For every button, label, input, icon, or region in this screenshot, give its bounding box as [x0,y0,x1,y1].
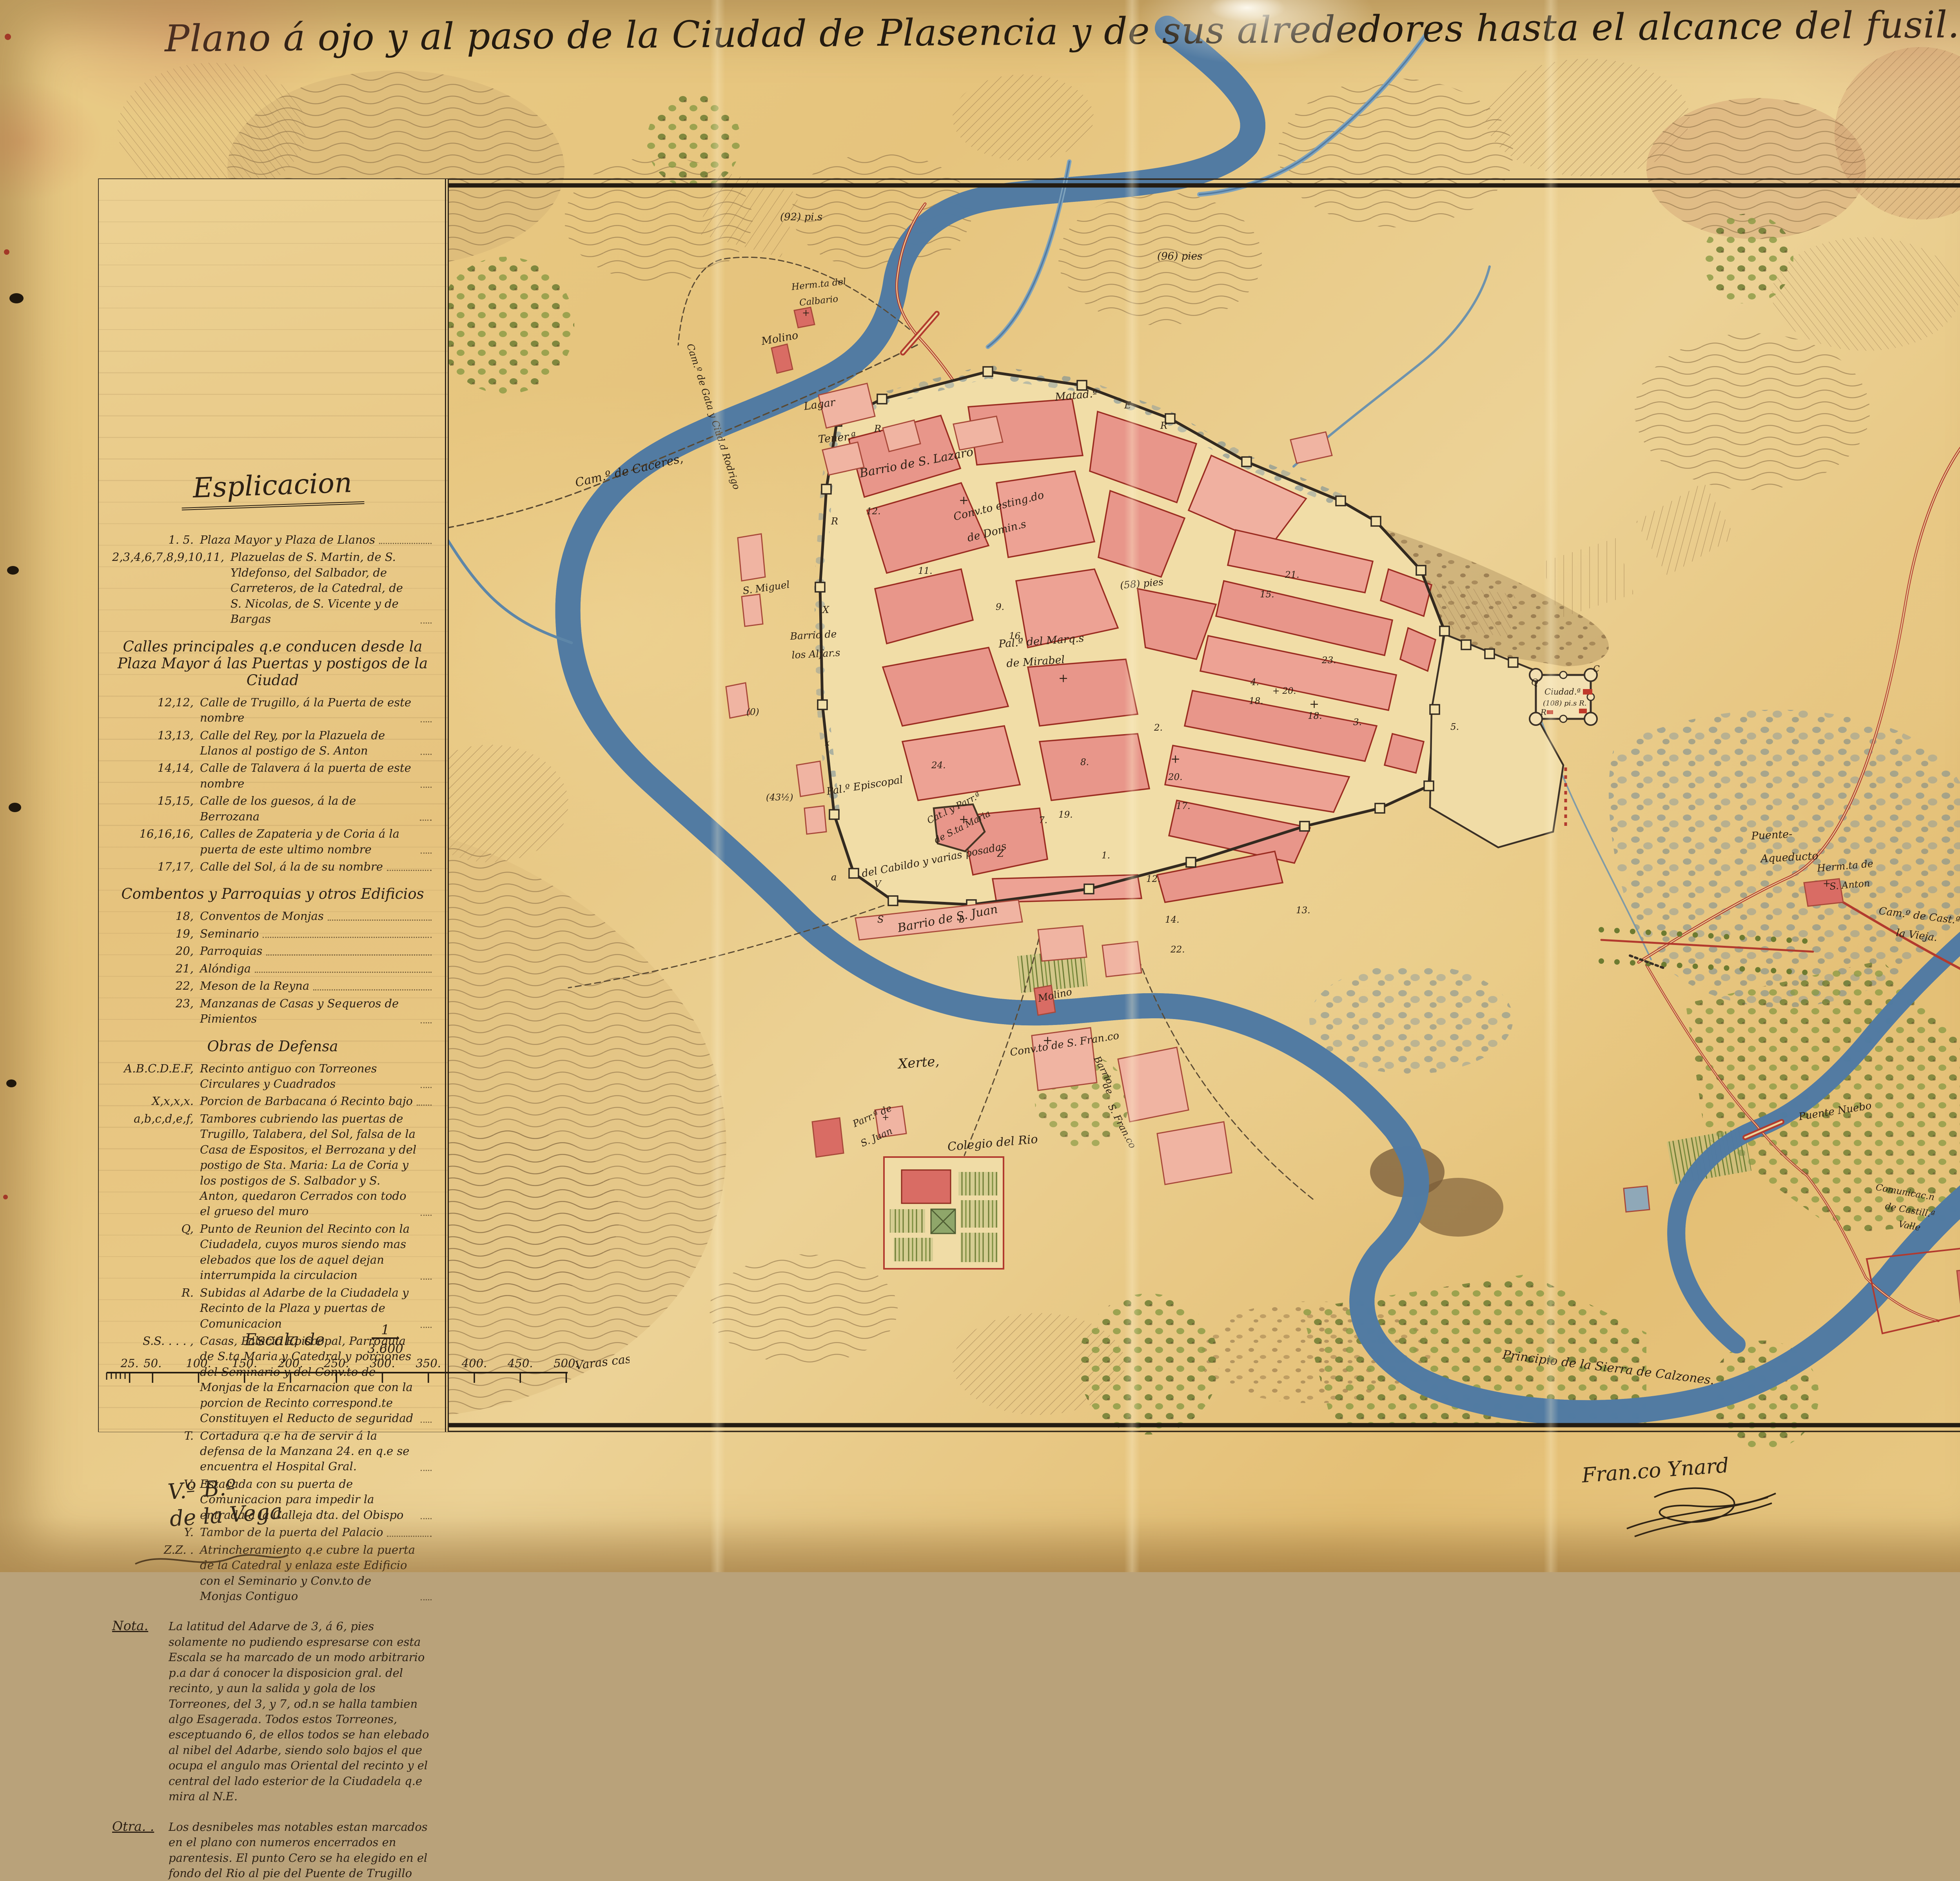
map-label: 14. [1165,915,1180,925]
legend-panel: Esplicacion 1. 5.Plaza Mayor y Plaza de … [99,179,449,1432]
map-label: 11. [918,566,933,576]
legend-entry: a,b,c,d,e,f,Tambores cubriendo las puert… [112,1111,433,1219]
legend-entry-key: 22, [112,978,200,994]
map-label: 9. [996,602,1004,612]
wall-tower [849,869,858,878]
legend-section-header: Calles principales q.e conducen desde la… [116,638,429,689]
dotted-leader [421,853,432,854]
legend-entry: Y.Tambor de la puerta del Palacio [112,1525,433,1540]
wall-tower [983,367,993,376]
dotted-leader [421,787,432,788]
scale-fraction-numerator: 1 [381,1322,390,1338]
legend-entry-text: Meson de la Reyna [200,978,309,994]
legend-entry: 22,Meson de la Reyna [112,978,433,994]
legend-entry: 2,3,4,6,7,8,9,10,11,Plazuelas de S. Mart… [112,550,433,627]
legend-section-header: Obras de Defensa [116,1038,429,1055]
dotted-leader [421,1599,432,1600]
map-label: 19. [1058,810,1073,820]
legend-entry-key: 23, [112,996,200,1011]
legend-entry-text: Porcion de Barbacana ó Recinto bajo [200,1094,413,1109]
map-label: + [882,1113,889,1123]
scale-tick-label: 100. [186,1357,211,1370]
map-label: + [1171,752,1180,766]
legend-entry-text: La latitud del Adarve de 3, á 6, pies so… [169,1619,433,1804]
dotted-leader [421,721,432,722]
map-label: 17. [1176,801,1191,811]
legend-entry-text: Calle de Talavera á la puerta de este no… [200,760,417,791]
scale-unit: Varas castell.s [574,1349,630,1373]
legend-entry-key: 21, [112,961,200,976]
map-label: + [959,493,969,507]
dotted-leader [387,1536,432,1537]
dotted-leader [328,920,432,921]
legend-entry-text: Seminario [200,926,259,941]
legend-entry-key: a,b,c,d,e,f, [112,1111,200,1126]
legend-entry-key: 18, [112,909,200,924]
wall-tower [1371,517,1381,526]
legend-entry-key: 2,3,4,6,7,8,9,10,11, [112,550,230,565]
legend-entry-key: 20, [112,943,200,959]
signature-right-flourish [1603,1482,1784,1552]
legend-entry-text: Alóndiga [200,961,251,976]
legend-entry: 18,Conventos de Monjas [112,909,433,924]
map-label: 2. [1154,723,1163,733]
legend-entry-key: T. [112,1428,200,1444]
wall-tower [1416,566,1426,575]
map-label: Herm.ta del [791,277,847,293]
scale-ticks: 25.50.100.150.200.250.300.350.400.450.50… [120,1357,579,1383]
map-label: Ciudad.ª [1544,687,1581,697]
legend-entry-text: Calle del Rey, por la Plazuela de Llanos… [200,728,417,759]
dotted-leader [387,870,432,871]
map-label: (0) [746,707,759,717]
map-label: + 20. [1272,686,1296,696]
legend-entry-text: Calle de los guesos, á la de Berrozana [200,793,416,824]
ink-blob [7,566,19,575]
dotted-leader [266,954,432,956]
map-label: 18. [1308,711,1322,721]
map-label: 24. [931,760,946,771]
legend-entries: 1. 5.Plaza Mayor y Plaza de Llanos2,3,4,… [112,532,433,1881]
red-speck [5,34,11,40]
map-label: + [1043,1034,1053,1047]
wall-tower [1300,822,1309,831]
dotted-leader [420,820,432,821]
legend-entry-key: 17,17, [112,859,200,874]
legend-entry-text: Tambores cubriendo las puertas de Trugil… [200,1111,417,1219]
wall-tower [1430,705,1439,714]
map-label: 15. [1260,590,1274,600]
dotted-leader [379,543,432,544]
legend-entry: 12,12,Calle de Trugillo, á la Puerta de … [112,695,433,726]
legend-entry-key: 15,15, [112,793,200,809]
legend-entry: X,x,x,x.Porcion de Barbacana ó Recinto b… [112,1094,433,1109]
map-label: 5. [1450,722,1459,732]
legend-entry: Q,Punto de Reunion del Recinto con la Ci… [112,1221,433,1283]
map-label: Colegio del Rio [947,1132,1038,1154]
legend-entry: 13,13,Calle del Rey, por la Plazuela de … [112,728,433,759]
red-speck [4,249,9,255]
map-label: 12. [866,506,881,517]
map-label: Q [1531,678,1538,687]
wall-tower [1084,884,1094,894]
map-label: 23. [1321,655,1336,666]
wall-tower [1375,804,1385,813]
map-label: R [1160,420,1167,431]
map-label: R [1540,707,1546,717]
map-label: 21. [1285,570,1299,580]
wall-tower [1485,649,1494,658]
map-label: b [959,914,965,925]
legend-entry: A.B.C.D.E.F,Recinto antiguo con Torreone… [112,1061,433,1092]
legend-entry: 19,Seminario [112,926,433,941]
map-label: E [1124,400,1131,411]
map-label: + [1823,878,1831,889]
dotted-leader [421,1279,432,1280]
map-label: (96) pies [1157,250,1202,262]
legend-entry-key: 16,16,16, [112,826,200,842]
ink-blob [9,803,21,812]
legend-entry: 15,15,Calle de los guesos, á la de Berro… [112,793,433,824]
legend-section-header: Combentos y Parroquias y otros Edificios [116,885,429,902]
map-label: Xerte, [897,1054,940,1072]
legend-entry-text: Plaza Mayor y Plaza de Llanos [200,532,375,548]
legend-entry: 20,Parroquias [112,943,433,959]
dotted-leader [255,972,432,973]
dotted-leader [421,1422,432,1423]
map-label: Puente- [1751,828,1793,842]
legend-entry-key: 13,13, [112,728,200,743]
dotted-leader [421,1215,432,1216]
signature-left: V.º B.º de la Vega [167,1471,283,1532]
legend-entry-key: Q, [112,1221,200,1237]
map-label: 16. [1009,631,1024,641]
legend-entry-text: Los desnibeles mas notables estan marcad… [169,1819,433,1881]
legend-entry-text: Parroquias [200,943,262,959]
legend-entry-key: Otra. . [112,1818,169,1836]
map-label: Molino [760,329,799,348]
legend-entry-text: Calles de Zapateria y de Coria á la puer… [200,826,417,857]
wall-tower [1424,781,1434,791]
scale-tick-label: 350. [416,1357,441,1370]
map-label: R [874,423,881,434]
map-label: X [822,604,829,615]
legend-entry: T.Cortadura q.e ha de servir á la defens… [112,1428,433,1475]
legend-entry: 14,14,Calle de Talavera á la puerta de e… [112,760,433,791]
wall-tower [1186,858,1196,867]
dotted-leader [421,754,432,755]
map-label: Z [997,848,1004,859]
legend-entry: Nota.La latitud del Adarve de 3, á 6, pi… [112,1617,433,1804]
dotted-leader [263,937,432,938]
map-label: C [1593,664,1600,674]
legend-entry-text: Cortadura q.e ha de servir á la defensa … [200,1428,417,1475]
wall-tower [815,582,825,592]
map-label: 7. [1039,815,1047,825]
dotted-leader [421,1518,432,1519]
scale-tick-label: 25. [120,1357,139,1370]
legend-title: Esplicacion [181,466,365,510]
red-speck [3,1195,8,1199]
map-label: + [1058,671,1068,685]
legend-entry-key: 12,12, [112,695,200,710]
map-label: R [831,516,838,527]
map-label: a [831,872,837,883]
legend-entry-text: Calle de Trugillo, á la Puerta de este n… [200,695,417,726]
map-label: S [877,914,884,925]
dotted-leader [417,1105,432,1106]
map-label: 12. [1146,874,1161,884]
map-label: (108) pi.s R. [1543,699,1586,707]
dotted-leader [421,1470,432,1471]
legend-entry-text: Plazuelas de S. Martin, de S. Yldefonso,… [230,550,417,627]
scale-tick-label: 450. [507,1357,533,1370]
legend-entry-key: X,x,x,x. [112,1094,200,1109]
scale-fraction-denominator: 3.600 [367,1341,403,1356]
map-label: 3. [1353,717,1362,727]
colegio-del-rio [884,1157,1004,1269]
wall-tower [1242,457,1251,466]
legend-entry-text: Manzanas de Casas y Sequeros de Pimiento… [200,996,417,1027]
map-label: 4. [1250,677,1259,687]
wall-tower [1461,640,1471,649]
map-label: S. Miguel [742,579,790,597]
ink-blob [9,293,24,303]
map-label: Calbario [799,294,838,308]
dotted-leader [421,622,432,624]
scale-tick-label: 150. [232,1357,257,1370]
legend-entry-key: A.B.C.D.E.F, [112,1061,200,1076]
dotted-leader [421,1087,432,1088]
map-label: 1. [1102,851,1110,861]
map-label: (43½) [766,793,793,803]
map-label: (92) pi.s [780,211,822,223]
scale-tick-label: 250. [323,1357,349,1370]
legend-entry-key: R. [112,1285,200,1301]
legend-entry-text: Punto de Reunion del Recinto con la Ciud… [200,1221,417,1283]
map-label: 22. [1170,945,1185,955]
wall-tower [1508,658,1518,667]
dotted-leader [313,989,432,990]
legend-entry-key: 14,14, [112,760,200,776]
legend-entry: 21,Alóndiga [112,961,433,976]
map-label: x [825,738,830,748]
map-label: 18. [1249,696,1263,706]
signature-left-flourish [129,1546,294,1574]
map-label: + [1309,697,1319,711]
scale-caption: Escala de [244,1330,325,1349]
legend-entry: Otra. .Los desnibeles mas notables estan… [112,1818,433,1881]
map-label: V [874,879,882,890]
legend-entry-text: Recinto antiguo con Torreones Circulares… [200,1061,417,1092]
map-label: 8. [1080,757,1089,767]
ink-blob [6,1079,16,1087]
scale-tick-label: 50. [143,1357,162,1370]
legend-entry: 17,17,Calle del Sol, á la de su nombre [112,859,433,874]
map-label: 20. [1168,772,1183,782]
legend-entry-key: 19, [112,926,200,941]
wall-tower [877,394,887,404]
wall-tower [822,484,831,494]
wall-tower [829,810,839,819]
scale-tick-label: 200. [278,1357,303,1370]
wall-tower [818,700,827,709]
legend-entry: 23,Manzanas de Casas y Sequeros de Pimie… [112,996,433,1027]
legend-entry-key: Nota. [112,1617,169,1635]
scale-tick-label: 400. [461,1357,487,1370]
dotted-leader [421,1022,432,1023]
map-label: 13. [1296,905,1310,916]
scale-tick-label: 300. [370,1357,395,1370]
legend-entry: 1. 5.Plaza Mayor y Plaza de Llanos [112,532,433,548]
map-label: + [959,813,969,826]
map-label: + [802,307,810,318]
legend-entry-text: Conventos de Monjas [200,909,324,924]
wall-tower [1440,626,1449,636]
wall-tower [888,896,898,905]
map-label: S. Juan [859,1125,894,1149]
wall-tower [1336,496,1345,506]
legend-entry: 16,16,16,Calles de Zapateria y de Coria … [112,826,433,857]
legend-entry-key: 1. 5. [112,532,200,548]
legend-entry-text: Calle del Sol, á la de su nombre [200,859,383,874]
